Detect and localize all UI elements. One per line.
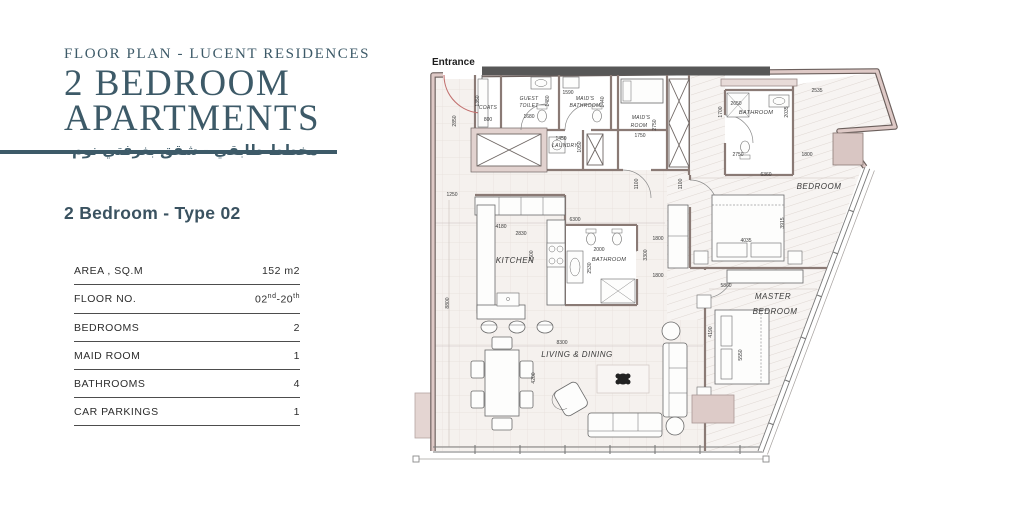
- dim-label: 1250: [446, 192, 457, 198]
- dim-label: 5550: [738, 349, 744, 360]
- page-title: 2 BEDROOM APARTMENTS: [64, 67, 370, 137]
- dim-label: 3915: [780, 217, 786, 228]
- spec-row-bedrooms: BEDROOMS 2: [74, 314, 300, 342]
- floorplan-drawing: Entrance: [410, 55, 915, 475]
- dim-label: 2750: [732, 152, 743, 158]
- spec-table: AREA , SQ.M 152 m2 FLOOR NO. 02nd-20th B…: [74, 257, 300, 426]
- room-label: MASTER: [755, 292, 791, 301]
- spec-label: MAID ROOM: [74, 350, 140, 362]
- dim-label: 1480: [545, 95, 551, 106]
- title-line-1: 2 BEDROOM: [64, 67, 370, 102]
- dim-label: 1450: [555, 136, 566, 142]
- spec-value: 02nd-20th: [255, 293, 300, 306]
- room-label: BEDROOM: [797, 182, 842, 191]
- room-label: BEDROOM: [753, 307, 798, 316]
- entrance-label: Entrance: [432, 57, 475, 68]
- dim-label: 1700: [718, 106, 724, 117]
- spec-value: 1: [294, 406, 300, 418]
- master-dresser: [727, 270, 803, 283]
- dim-label: 2035: [784, 106, 790, 117]
- dim-label: 1050: [577, 141, 583, 152]
- plant: [616, 374, 631, 385]
- dim-label: 1750: [634, 133, 645, 139]
- dim-label: 6360: [760, 172, 771, 178]
- dim-label: 2000: [593, 247, 604, 253]
- room-label: MAID'S: [632, 115, 651, 121]
- dim-label: 1800: [801, 152, 812, 158]
- spec-row-parking: CAR PARKINGS 1: [74, 398, 300, 426]
- brand-block: FLOOR PLAN - LUCENT RESIDENCES 2 BEDROOM…: [64, 46, 370, 159]
- spec-value: 2: [294, 322, 300, 334]
- room-label: ROOM: [631, 123, 648, 129]
- unit-type-heading: 2 Bedroom - Type 02: [64, 203, 241, 224]
- room-label: LIVING & DINING: [541, 350, 613, 359]
- wardrobe: [668, 205, 688, 268]
- spec-label: AREA , SQ.M: [74, 265, 143, 277]
- sofa-vertical: [663, 343, 687, 417]
- dim-label: 4035: [740, 238, 751, 244]
- dim-label: 5860: [720, 283, 731, 289]
- dining-table: [485, 350, 519, 416]
- dim-label: 2530: [587, 262, 593, 273]
- bar-stool: [509, 321, 525, 333]
- room-label: COATS: [479, 105, 498, 111]
- room-label: BATHROOM: [570, 103, 601, 109]
- dim-label: 1800: [652, 236, 663, 242]
- dim-label: 2850: [452, 115, 458, 126]
- dim-label: 1100: [634, 178, 640, 189]
- accent-divider: [0, 150, 337, 154]
- dim-label: 800: [484, 117, 493, 123]
- room-label: LAUNDRY: [552, 143, 578, 149]
- spec-value: 152 m2: [262, 265, 300, 277]
- dim-label: 2750: [652, 119, 658, 130]
- dim-label: 1440: [600, 96, 606, 107]
- bar-stool: [537, 321, 553, 333]
- room-label: MAID'S: [576, 96, 595, 102]
- bar-stool: [481, 321, 497, 333]
- spec-label: BATHROOMS: [74, 378, 145, 390]
- room-label: BATHROOM: [592, 257, 626, 263]
- spec-row-floor: FLOOR NO. 02nd-20th: [74, 285, 300, 314]
- room-label: GUEST: [520, 96, 539, 102]
- dim-label: 8300: [556, 340, 567, 346]
- master-wardrobe: [692, 395, 734, 423]
- dim-label: 3300: [643, 249, 649, 260]
- dim-label: 2830: [515, 231, 526, 237]
- spec-row-area: AREA , SQ.M 152 m2: [74, 257, 300, 285]
- spec-label: FLOOR NO.: [74, 293, 136, 305]
- spec-row-maid: MAID ROOM 1: [74, 342, 300, 370]
- dim-label: 1350: [475, 95, 481, 106]
- dim-label: 1590: [562, 90, 573, 96]
- dim-label: 8800: [445, 297, 451, 308]
- spec-value: 4: [294, 378, 300, 390]
- dim-label: 1100: [678, 178, 684, 189]
- dim-label: 2650: [730, 101, 741, 107]
- side-table: [666, 417, 684, 435]
- title-line-2: APARTMENTS: [64, 102, 370, 137]
- brand-eyebrow: FLOOR PLAN - LUCENT RESIDENCES: [64, 46, 370, 63]
- dim-label: 4200: [531, 372, 537, 383]
- sofa-horizontal: [588, 413, 662, 437]
- room-label: BATHROOM: [739, 110, 773, 116]
- spec-row-bath: BATHROOMS 4: [74, 370, 300, 398]
- spec-label: BEDROOMS: [74, 322, 139, 334]
- dim-label: 1800: [652, 273, 663, 279]
- spec-label: CAR PARKINGS: [74, 406, 159, 418]
- dim-label: 1680: [523, 114, 534, 120]
- dim-label: 4190: [708, 326, 714, 337]
- dim-label: 2535: [811, 88, 822, 94]
- dim-label: 1500: [529, 250, 535, 261]
- spec-value: 1: [294, 350, 300, 362]
- side-table: [662, 322, 680, 340]
- kitchen-island: [477, 205, 495, 313]
- room-label: TOILET: [519, 103, 539, 109]
- floorplan: Entrance: [410, 55, 915, 475]
- dim-label: 4180: [495, 224, 506, 230]
- dim-label: 6300: [569, 217, 580, 223]
